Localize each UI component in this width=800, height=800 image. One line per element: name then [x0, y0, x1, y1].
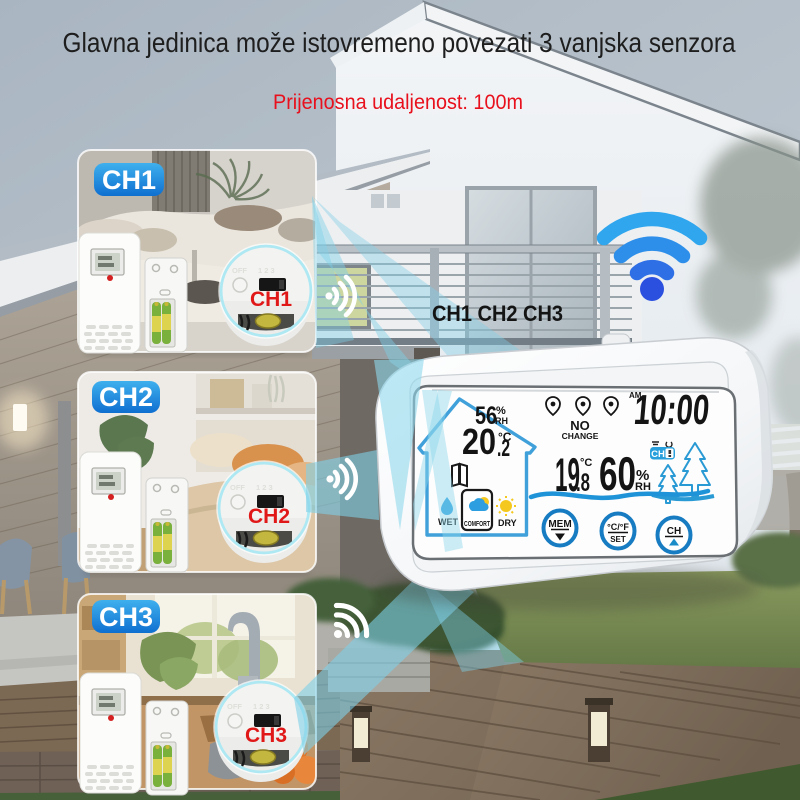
- svg-text:MEM: MEM: [548, 519, 571, 530]
- svg-text:RH: RH: [495, 416, 508, 426]
- svg-text:SET: SET: [610, 535, 626, 544]
- svg-text:CH1: CH1: [250, 288, 292, 311]
- svg-text:°C: °C: [498, 430, 512, 444]
- svg-text:DRY: DRY: [498, 518, 517, 528]
- svg-text:60: 60: [599, 447, 636, 500]
- svg-text:20: 20: [462, 421, 496, 462]
- svg-text:CH2: CH2: [248, 505, 290, 528]
- svg-text:CH1: CH1: [102, 165, 156, 195]
- svg-text:Prijenosna udaljenost: 100m: Prijenosna udaljenost: 100m: [273, 91, 523, 114]
- svg-text:CH2: CH2: [99, 382, 153, 412]
- svg-text:CHANGE: CHANGE: [562, 431, 599, 441]
- svg-text:.8: .8: [576, 469, 590, 497]
- svg-text:CH3: CH3: [245, 724, 287, 747]
- svg-text:°C/°F: °C/°F: [607, 522, 629, 532]
- svg-text:CH: CH: [651, 449, 665, 460]
- svg-text:RH: RH: [635, 481, 651, 493]
- svg-text:CH3: CH3: [99, 602, 153, 632]
- svg-text:COMFORT: COMFORT: [464, 519, 490, 528]
- svg-text:Glavna jedinica može istovreme: Glavna jedinica može istovremeno povezat…: [63, 27, 737, 58]
- svg-text:CH1 CH2 CH3: CH1 CH2 CH3: [432, 301, 563, 326]
- svg-text:CH: CH: [667, 526, 681, 537]
- svg-text:°C: °C: [580, 457, 592, 469]
- svg-text:10:00: 10:00: [632, 386, 711, 433]
